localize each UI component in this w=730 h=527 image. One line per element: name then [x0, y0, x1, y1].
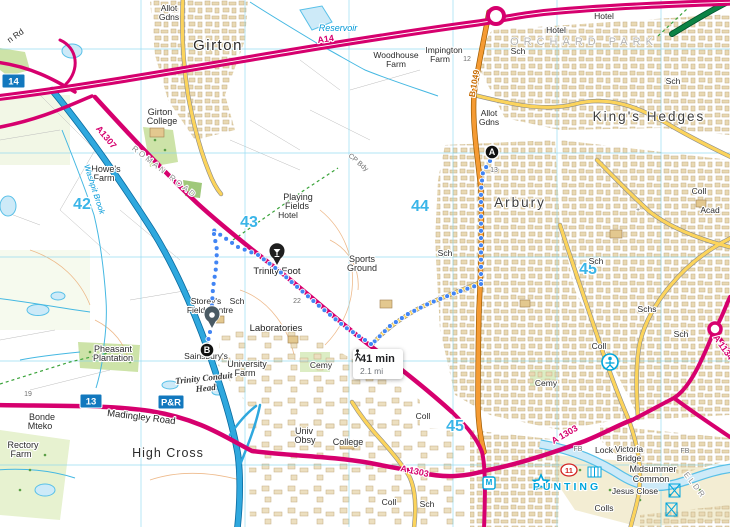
- route-dot: [458, 289, 463, 294]
- map-label: Plantation: [93, 353, 133, 363]
- map-label: King's Hedges: [593, 109, 706, 124]
- svg-text:B: B: [204, 345, 211, 355]
- route-marker-A[interactable]: A: [485, 145, 499, 159]
- route-dot: [305, 294, 310, 299]
- route-dot: [289, 280, 294, 285]
- map-label: Laboratories: [250, 323, 303, 334]
- route-dot: [438, 296, 443, 301]
- route-dot: [479, 243, 484, 248]
- route-dot: [479, 282, 484, 287]
- map-label: Sch: [674, 329, 689, 339]
- map-label: Sch: [438, 248, 453, 258]
- route-dot: [278, 270, 283, 275]
- route-dot: [399, 316, 404, 321]
- map-label: Girton: [193, 37, 243, 54]
- route-dot: [230, 240, 235, 245]
- route-dot: [218, 232, 223, 237]
- map-label: Sch: [511, 46, 526, 56]
- map-label: M: [486, 478, 493, 487]
- motorway-junction-badge: 13: [80, 394, 102, 408]
- route-dot: [295, 284, 300, 289]
- route-dot: [362, 338, 367, 343]
- map-label: Obsy: [294, 435, 316, 445]
- route-dot: [316, 303, 321, 308]
- route-dot: [393, 320, 398, 325]
- route-marker-B[interactable]: B: [200, 343, 214, 357]
- map-label: Hotel: [278, 210, 298, 220]
- map-label: 42: [73, 196, 91, 213]
- motorway-junction-badge: 14: [2, 74, 25, 88]
- route-dot: [344, 326, 349, 331]
- map-label: 13: [490, 167, 498, 174]
- route-dot: [472, 284, 477, 289]
- map-label: Hotel: [546, 25, 566, 35]
- route-dot: [213, 267, 218, 272]
- route-dot: [339, 321, 344, 326]
- route-dot: [214, 253, 219, 258]
- route-dot: [480, 171, 485, 176]
- map-label: PUNTING: [533, 481, 601, 493]
- svg-text:14: 14: [8, 77, 19, 88]
- route-dot: [267, 261, 272, 266]
- route-dot: [249, 250, 254, 255]
- map-label: Cemy: [310, 360, 333, 370]
- map-label: Midsummer: [629, 464, 676, 474]
- route-dot: [479, 236, 484, 241]
- route-dot: [224, 236, 229, 241]
- map-label: Coll: [382, 497, 397, 507]
- map-label: Sch: [666, 76, 681, 86]
- route-dot: [382, 329, 387, 334]
- map-label: Bridge: [617, 453, 642, 463]
- map-label: FB: [681, 448, 690, 455]
- mooring-icon: [588, 467, 601, 477]
- route-dot: [479, 250, 484, 255]
- route-dot: [479, 192, 484, 197]
- svg-text:A: A: [489, 147, 496, 157]
- map-label: Cemy: [535, 378, 558, 388]
- route-dot: [300, 289, 305, 294]
- route-dot: [356, 334, 361, 339]
- svg-text:13: 13: [86, 397, 97, 408]
- map-canvas[interactable]: Girtonn RdAllotGdnsReservoirA14Woodhouse…: [0, 0, 730, 527]
- map-label: Schs: [638, 304, 657, 314]
- map-label: College: [333, 437, 364, 447]
- map-svg: Girtonn RdAllotGdnsReservoirA14Woodhouse…: [0, 0, 730, 527]
- map-label: Farm: [11, 449, 32, 459]
- route-distance: 2.1 mi: [360, 366, 395, 376]
- map-label: Gdns: [159, 12, 179, 22]
- route-dot: [369, 342, 374, 347]
- route-dot: [479, 221, 484, 226]
- svg-text:P&R: P&R: [161, 398, 181, 409]
- map-label: 43: [240, 214, 258, 231]
- route-dot: [213, 239, 218, 244]
- map-label: +: [636, 207, 640, 214]
- route-dot: [445, 294, 450, 299]
- map-label: Coll: [592, 341, 607, 351]
- map-label: Jesus Close: [612, 486, 659, 496]
- route-dot: [328, 312, 333, 317]
- route-dot: [451, 291, 456, 296]
- park-and-ride-badge: P&R: [158, 395, 184, 409]
- map-label: 11: [565, 466, 573, 475]
- route-dot: [284, 275, 289, 280]
- map-label: FB: [574, 446, 583, 453]
- leisure-centre-icon[interactable]: [602, 354, 618, 370]
- route-dot: [465, 286, 470, 291]
- route-dot: [479, 214, 484, 219]
- map-label: Acad: [700, 205, 720, 215]
- route-summary-tooltip[interactable]: 41 min 2.1 mi: [353, 349, 403, 379]
- route-dot: [479, 207, 484, 212]
- route-dot: [214, 246, 219, 251]
- map-label: Farm: [430, 54, 450, 64]
- route-dot: [212, 274, 217, 279]
- route-dot: [479, 257, 484, 262]
- walking-icon: [353, 349, 362, 362]
- map-label: Arbury: [494, 195, 546, 210]
- route-dot: [387, 324, 392, 329]
- map-label: Mteko: [28, 421, 53, 431]
- map-label: 44: [411, 198, 429, 215]
- map-label: Gdns: [479, 117, 499, 127]
- route-dot: [479, 272, 484, 277]
- route-dot: [412, 308, 417, 313]
- route-dot: [210, 289, 215, 294]
- map-label: Reservoir: [319, 23, 359, 33]
- map-label: College: [147, 116, 178, 126]
- route-dot: [214, 260, 219, 265]
- map-label: Lock: [595, 445, 614, 455]
- route-dot: [235, 244, 240, 249]
- route-dot: [206, 337, 211, 342]
- route-dot: [405, 312, 410, 317]
- route-dot: [479, 264, 484, 269]
- map-label: Farm: [235, 368, 256, 378]
- route-dot: [208, 330, 213, 335]
- map-label: 45: [446, 418, 464, 435]
- route-dot: [480, 178, 485, 183]
- map-label: ORCHARD PARK: [510, 36, 658, 48]
- route-dot: [322, 308, 327, 313]
- map-label: Colls: [595, 503, 614, 513]
- route-dot: [256, 253, 261, 258]
- map-label: Sch: [420, 499, 435, 509]
- route-dot: [431, 299, 436, 304]
- route-dot: [425, 302, 430, 307]
- route-dot: [210, 296, 215, 301]
- route-dot: [479, 185, 484, 190]
- map-label: High Cross: [132, 446, 204, 460]
- route-dot: [333, 317, 338, 322]
- route-dot: [311, 298, 316, 303]
- route-dot: [261, 257, 266, 262]
- map-label: Coll: [692, 186, 707, 196]
- map-label: Ground: [347, 263, 377, 273]
- route-duration: 41 min: [360, 353, 395, 365]
- map-label: Farm: [386, 59, 406, 69]
- route-dot: [484, 165, 489, 170]
- map-label: 22: [293, 298, 301, 305]
- route-dot: [242, 247, 247, 252]
- route-dot: [212, 232, 217, 237]
- route-dot: [377, 334, 382, 339]
- map-label: Coll: [416, 411, 431, 421]
- route-dot: [479, 228, 484, 233]
- route-dot: [350, 330, 355, 335]
- route-dot: [479, 200, 484, 205]
- map-label: 19: [24, 391, 32, 398]
- route-dot: [211, 281, 216, 286]
- map-label: 12: [463, 56, 471, 63]
- route-dot: [418, 305, 423, 310]
- map-label: Common: [633, 474, 670, 484]
- map-label: Hotel: [594, 11, 614, 21]
- map-label: Sch: [589, 256, 604, 266]
